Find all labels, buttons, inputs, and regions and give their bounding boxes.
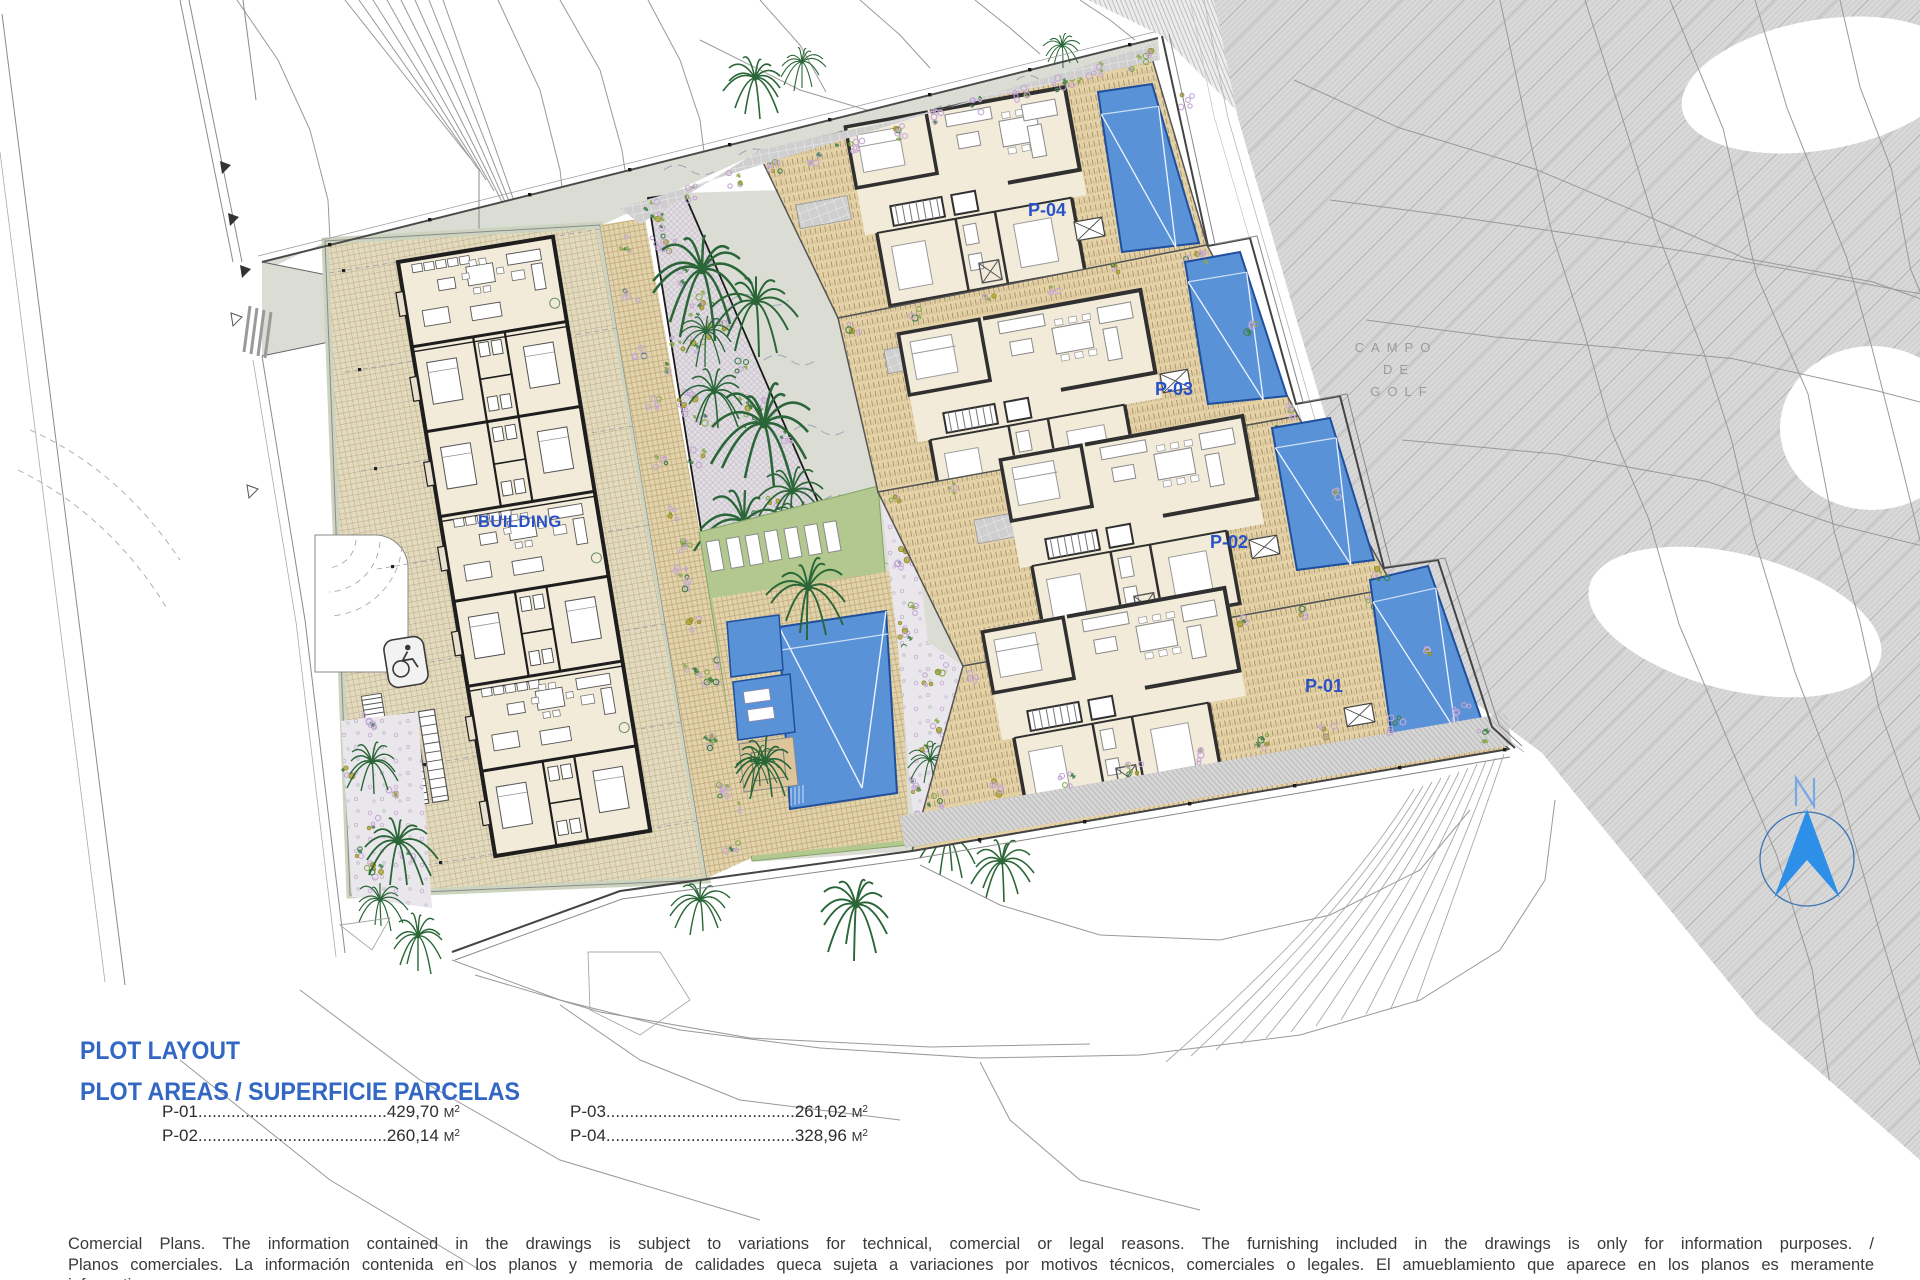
svg-text:P-04..........................: P-04....................................… [570, 1126, 868, 1145]
svg-text:BUILDING: BUILDING [478, 513, 562, 531]
svg-text:P-02: P-02 [1210, 532, 1248, 552]
svg-text:P-02..........................: P-02....................................… [162, 1126, 460, 1145]
svg-text:P-03: P-03 [1155, 379, 1193, 399]
svg-text:GOLF: GOLF [1370, 384, 1433, 399]
svg-text:P-04: P-04 [1028, 200, 1066, 220]
svg-text:P-03..........................: P-03....................................… [570, 1102, 868, 1121]
svg-text:P-01..........................: P-01....................................… [162, 1102, 460, 1121]
svg-text:DE: DE [1383, 362, 1415, 377]
svg-text:P-01: P-01 [1305, 676, 1343, 696]
svg-text:PLOT LAYOUT: PLOT LAYOUT [80, 1037, 240, 1065]
svg-text:CAMPO: CAMPO [1355, 340, 1438, 355]
